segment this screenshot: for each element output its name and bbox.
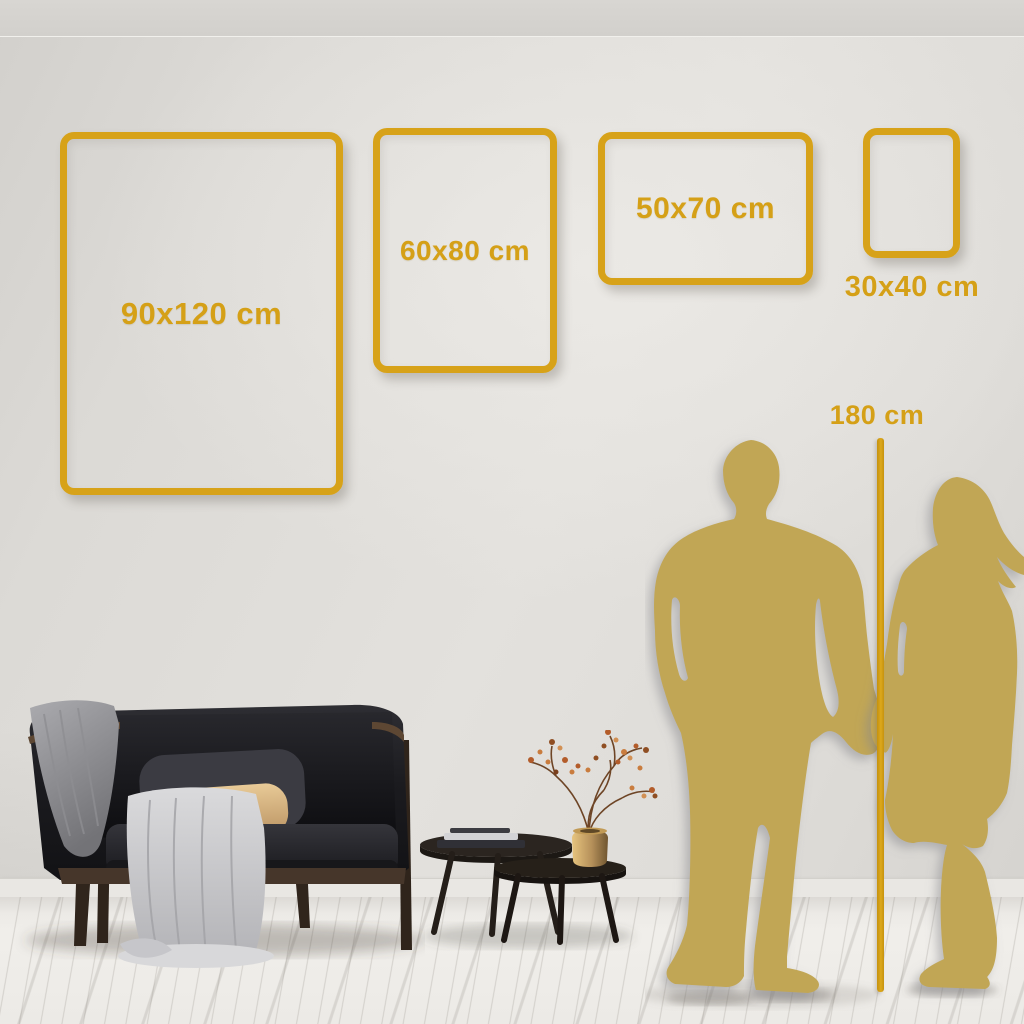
sofa-illustration (10, 690, 425, 970)
sofa-leg-front-mid (296, 884, 310, 928)
couple-silhouettes (645, 430, 1024, 1024)
branch-berries (528, 730, 658, 799)
size-frame-30x40 (863, 128, 960, 258)
size-frame-50x70-label: 50x70 cm (636, 192, 775, 226)
woman-silhouette (871, 477, 1024, 989)
size-frame-50x70: 50x70 cm (598, 132, 813, 285)
size-frame-60x80: 60x80 cm (373, 128, 557, 373)
size-frame-90x120-label: 90x120 cm (121, 296, 282, 332)
brass-vase (572, 828, 608, 868)
tables-shadow (423, 924, 633, 948)
size-frame-30x40-label: 30x40 cm (817, 271, 1007, 304)
size-frame-90x120: 90x120 cm (60, 132, 343, 495)
books-stack (437, 828, 525, 848)
coffee-tables-illustration (415, 730, 675, 955)
size-frame-60x80-label: 60x80 cm (400, 235, 530, 267)
height-reference-line (877, 438, 884, 992)
height-reference-label: 180 cm (811, 400, 943, 431)
size-guide-scene: 90x120 cm 60x80 cm 50x70 cm 30x40 cm 180… (0, 0, 1024, 1024)
dried-branches (530, 736, 654, 834)
man-silhouette (654, 440, 882, 993)
ceiling (0, 0, 1024, 37)
